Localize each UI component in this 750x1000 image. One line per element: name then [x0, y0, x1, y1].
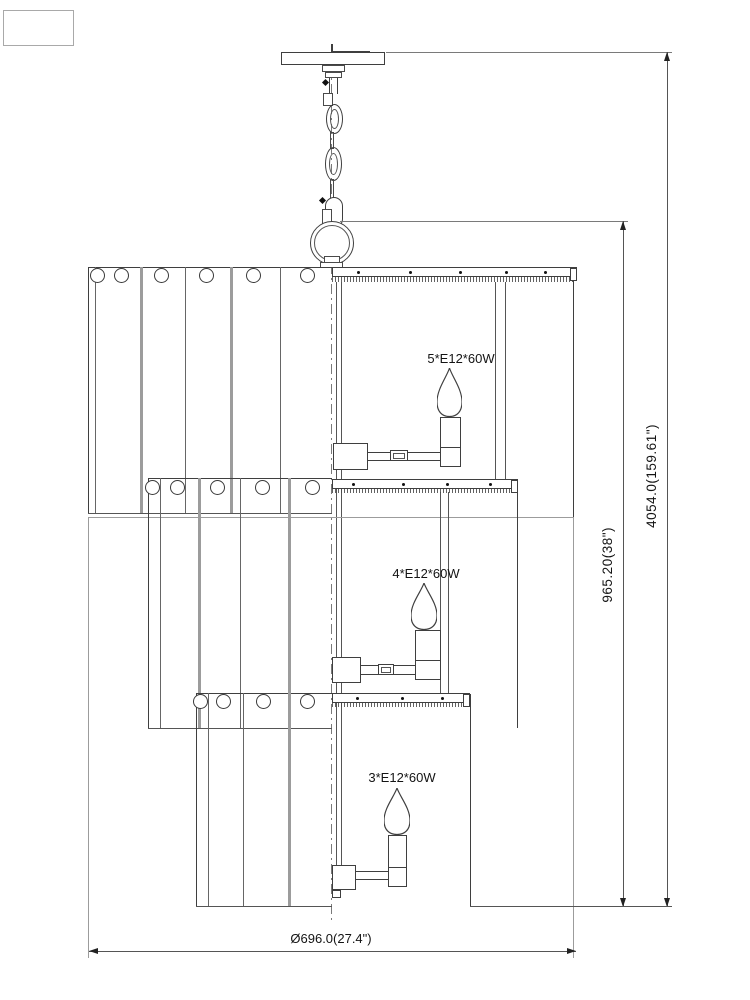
tier1-panel-divider: [95, 267, 96, 513]
tier1-panel-hole: [154, 268, 169, 283]
tier2-hanger-rod: [448, 492, 449, 694]
body-height-dimension-text: 965.20(38"): [600, 527, 615, 603]
tier1-right-edge: [573, 268, 574, 517]
tier2-panel-hole: [170, 480, 185, 495]
tier1-panel-hole: [199, 268, 214, 283]
tier1-panel-hole: [90, 268, 105, 283]
tier1-bar-end-cap: [570, 268, 577, 281]
extension-line-canopy: [386, 52, 672, 53]
tier1-bulb-label: 5*E12*60W: [401, 351, 521, 366]
tier2-panel-hole: [305, 480, 320, 495]
chain-link-inner: [329, 153, 338, 175]
set-screw-icon: [322, 79, 329, 86]
extension-line-left: [88, 517, 89, 958]
tier3-block-notch: [332, 890, 341, 898]
tier1-arm-clamp-inner: [393, 453, 405, 459]
tier2-rivet: [402, 483, 405, 486]
tier3-panel-divider: [243, 693, 244, 906]
chain-link-inner: [330, 109, 339, 129]
tier1-panel-hole: [300, 268, 315, 283]
tier3-candle-socket-seam: [388, 867, 407, 868]
tier1-center-block: [333, 443, 368, 470]
tier2-center-block: [332, 657, 361, 683]
tier2-bar-hatch-strip: [332, 489, 514, 493]
canopy-nut-upper: [322, 65, 345, 72]
arrow-up-icon: [664, 52, 670, 61]
tier3-candle-arm-bottom: [356, 879, 388, 880]
tier2-panel-divider: [288, 478, 291, 728]
tier2-candle-bulb: [411, 583, 437, 630]
tier2-panel-left-edge: [148, 478, 149, 728]
tier2-bulb-label: 4*E12*60W: [366, 566, 486, 581]
tier2-panel-hole: [145, 480, 160, 495]
tier1-mounting-bar: [332, 267, 577, 277]
arrow-left-icon: [89, 948, 98, 954]
extension-line-right: [573, 517, 574, 958]
tier3-panel-hole: [193, 694, 208, 709]
tier2-panel-hole: [210, 480, 225, 495]
tier1-rivet: [544, 271, 547, 274]
tier3-bar-end-cap: [463, 694, 470, 707]
tier1-rivet: [409, 271, 412, 274]
page-corner-artifact: [3, 10, 74, 46]
tier3-bar-hatch-strip: [332, 703, 466, 707]
tier3-panel-divider: [288, 693, 291, 906]
tier1-panel-hole: [246, 268, 261, 283]
tier3-rivet: [441, 697, 444, 700]
dimension-line-body-height: [623, 221, 624, 907]
tier1-rivet: [505, 271, 508, 274]
tier3-rivet: [401, 697, 404, 700]
tier1-panel-divider: [185, 267, 186, 513]
tier2-rivet: [352, 483, 355, 486]
tier2-panel-hole: [255, 480, 270, 495]
tier1-rivet: [357, 271, 360, 274]
chain-link-bar: [330, 179, 334, 199]
tier3-bulb-label: 3*E12*60W: [342, 770, 462, 785]
tier1-panel-bottom-line: [88, 513, 332, 514]
diameter-dimension-text: Ø696.0(27.4"): [231, 931, 431, 946]
tier3-panel-bottom-line: [196, 906, 332, 907]
tier2-panel-divider: [240, 478, 241, 728]
tier2-bar-end-cap: [511, 480, 518, 493]
tier1-panel-hole: [114, 268, 129, 283]
tier1-rivet: [459, 271, 462, 274]
hanger-stem: [329, 78, 338, 94]
tier3-center-block: [332, 865, 356, 890]
tier3-panel-hole: [216, 694, 231, 709]
tier2-rivet: [446, 483, 449, 486]
tier2-right-edge: [517, 480, 518, 728]
tier3-candle-bulb: [384, 788, 410, 835]
tier1-hanger-rod: [495, 282, 496, 479]
tier2-candle-socket-seam: [415, 660, 441, 661]
ceiling-canopy: [281, 52, 385, 65]
tier2-arm-clamp-inner: [381, 667, 391, 673]
tier1-bar-hatch-strip: [332, 277, 573, 282]
extension-line-bottom: [470, 906, 672, 907]
arrow-up-icon: [620, 221, 626, 230]
arrow-right-icon: [567, 948, 576, 954]
tier2-panel-divider: [198, 478, 201, 728]
dimension-line-overall-height: [667, 52, 668, 907]
tier3-panel-hole: [300, 694, 315, 709]
tier1-candle-socket-seam: [440, 447, 461, 448]
tier2-panel-divider: [160, 478, 161, 728]
tier1-candle-socket: [440, 417, 461, 467]
tier1-candle-bulb: [437, 368, 462, 417]
tier1-hanger-rod: [505, 282, 506, 479]
tier1-panel-left-edge: [88, 267, 89, 513]
tier3-panel-divider: [208, 693, 209, 906]
tier2-candle-socket: [415, 630, 441, 680]
technical-drawing-canvas: 5*E12*60W 4*E12*60W 3*E12*60W 965.20(38"…: [0, 0, 750, 1000]
tier2-rivet: [489, 483, 492, 486]
tier3-right-edge: [470, 694, 471, 906]
tier1-panel-divider: [140, 267, 143, 513]
dimension-line-diameter: [89, 951, 576, 952]
tier3-candle-socket: [388, 835, 407, 887]
tier3-candle-arm-top: [356, 871, 388, 872]
tier2-panel-bottom-line: [148, 728, 332, 729]
tier1-panel-divider: [280, 267, 281, 513]
tier3-rivet: [356, 697, 359, 700]
tier3-panel-hole: [256, 694, 271, 709]
extension-line-body-height: [340, 221, 628, 222]
tier1-panel-divider: [230, 267, 233, 513]
tier3-panel-left-edge: [196, 693, 197, 906]
overall-height-dimension-text: 4054.0(159.61"): [644, 424, 659, 528]
canopy-bracket-horizontal: [332, 51, 370, 53]
